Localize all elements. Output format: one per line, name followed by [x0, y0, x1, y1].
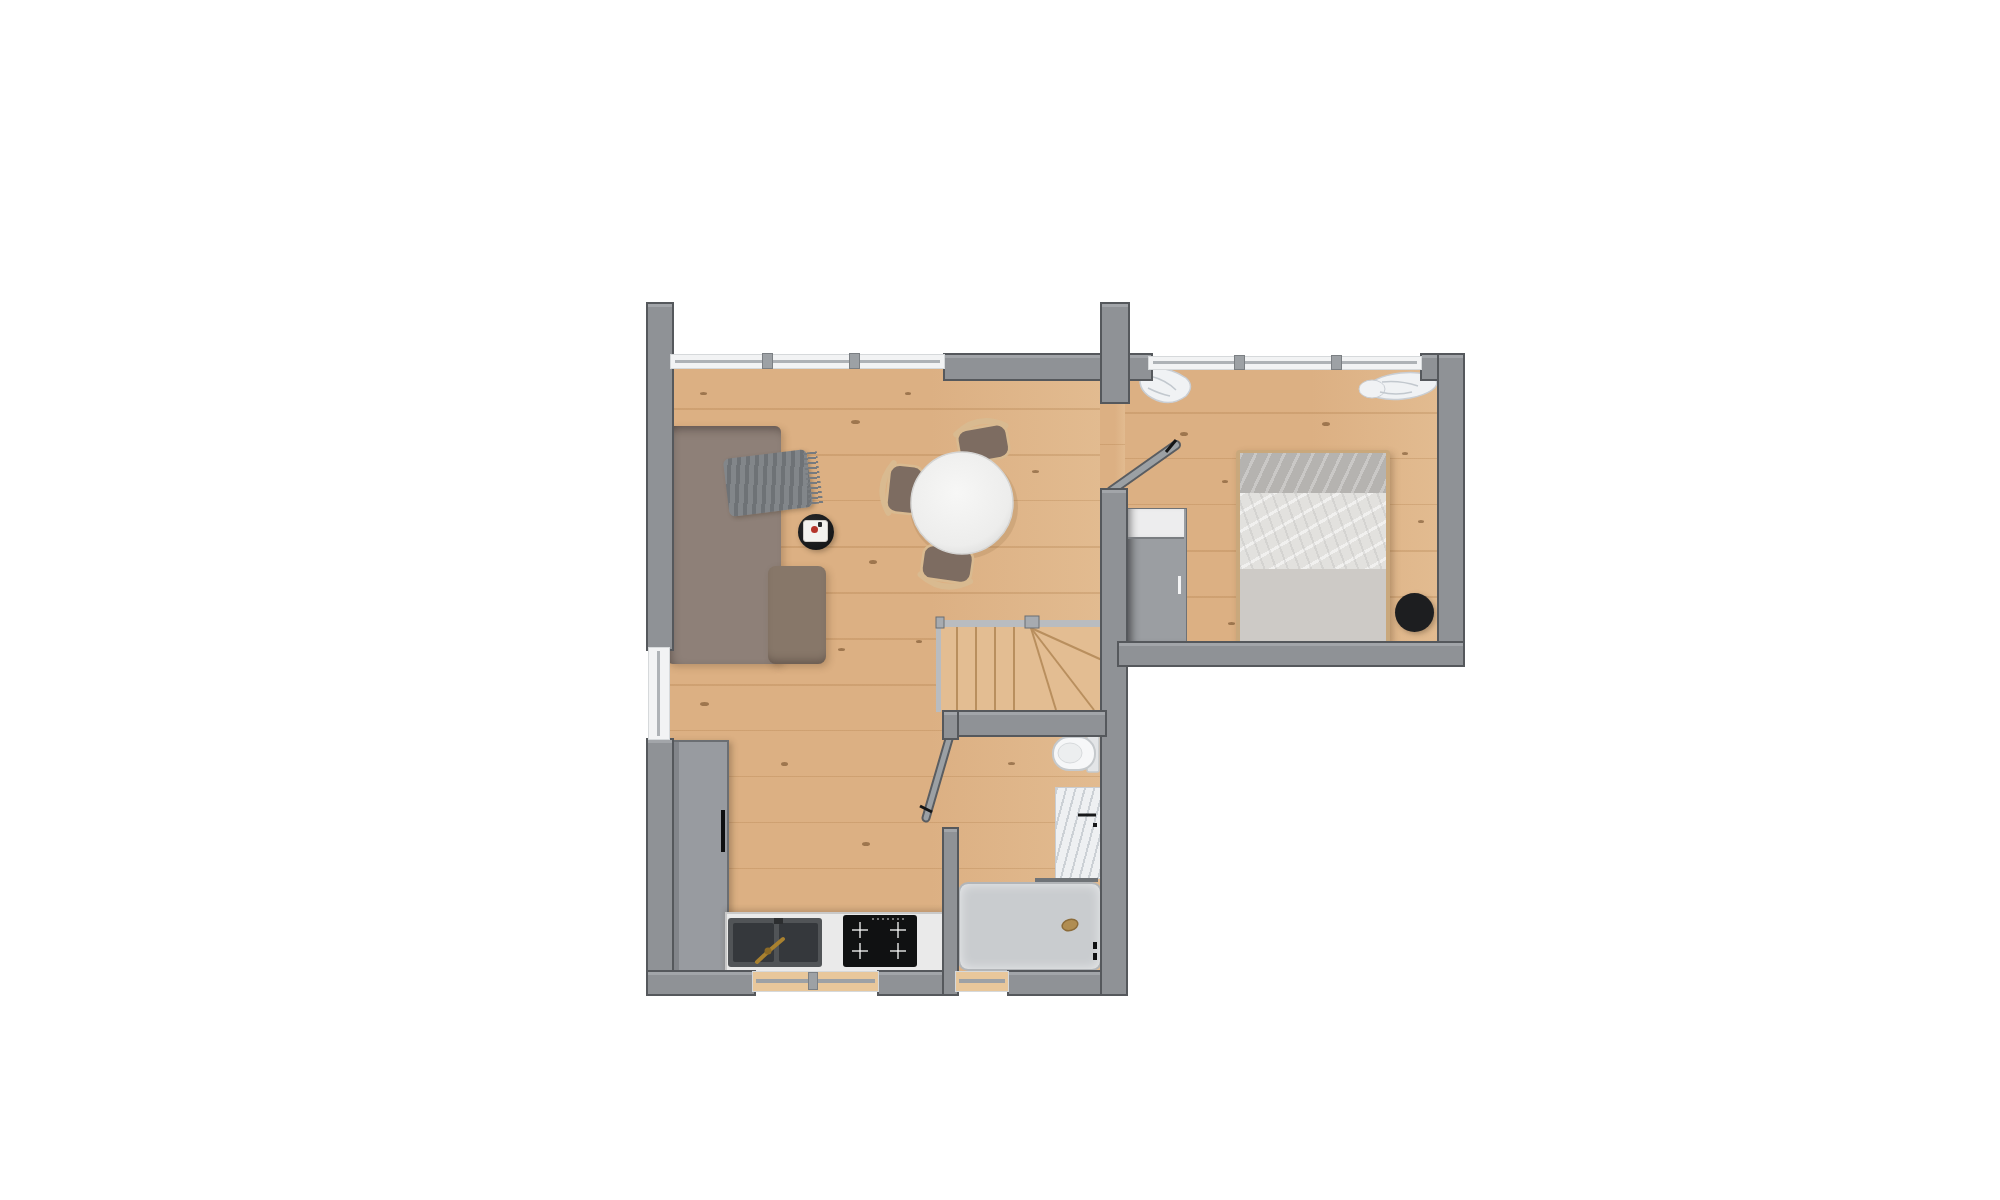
window-mullion	[1234, 355, 1245, 370]
sofa-chaise	[768, 566, 826, 664]
wall-bedroom-bottom	[1117, 641, 1465, 667]
bed-sheet	[1240, 569, 1386, 641]
wood-knot	[700, 392, 707, 395]
wood-knot	[916, 640, 922, 643]
window-mullion	[762, 353, 773, 369]
sink-basin-right	[779, 923, 818, 962]
wall-bath-left-stub	[942, 710, 959, 740]
wood-knot	[1418, 520, 1424, 523]
wall-center-vertical	[1100, 488, 1128, 996]
window-mullion	[849, 353, 860, 369]
kitchen-tall-cabinet	[668, 740, 729, 976]
cabinet-handle	[721, 810, 725, 852]
wood-knot	[781, 762, 788, 766]
candle-red	[811, 526, 818, 533]
living-top-window-band	[670, 354, 945, 369]
window-glass	[675, 360, 940, 363]
wall-under-stairs	[942, 710, 1107, 737]
wood-knot	[1008, 762, 1015, 765]
wood-knot	[1322, 422, 1330, 426]
window-glass	[1153, 361, 1417, 364]
wood-knot	[1180, 432, 1188, 436]
black-pouf	[1395, 593, 1434, 632]
cooktop	[843, 915, 917, 967]
wood-knot	[851, 420, 860, 424]
wood-knot	[869, 560, 877, 564]
bathroom-vanity	[1055, 787, 1102, 879]
wood-knot	[1402, 452, 1408, 455]
throw-blanket	[723, 449, 813, 517]
wood-knot	[862, 842, 870, 846]
window-glass	[657, 651, 660, 736]
wood-knot	[905, 392, 911, 395]
window-mullion	[1331, 355, 1342, 370]
bed-foot-band	[1240, 453, 1386, 493]
floor-plan-canvas	[0, 0, 2000, 1200]
shower-bottom-window	[955, 971, 1009, 992]
wall-left-lower	[646, 738, 674, 996]
wood-knot	[1228, 622, 1235, 625]
wardrobe-top-section	[1127, 509, 1184, 539]
wall-bottom-left	[646, 970, 756, 996]
wardrobe-handle	[1178, 576, 1181, 594]
left-wall-window	[648, 647, 670, 740]
tray-item-dark	[818, 522, 822, 527]
window-glass	[959, 979, 1005, 983]
shower-tray	[958, 882, 1102, 971]
wood-knot	[838, 648, 845, 651]
wall-bedroom-right	[1437, 353, 1465, 667]
sink-basin-left	[733, 923, 774, 962]
bed-duvet	[1240, 493, 1386, 569]
wood-knot	[700, 702, 709, 706]
floor-door-threshold	[1100, 398, 1125, 492]
window-mullion	[808, 972, 818, 990]
wood-knot	[1032, 470, 1039, 473]
wall-cross-stub	[1100, 302, 1130, 404]
bedroom-top-window-band	[1148, 356, 1422, 370]
wood-knot	[1222, 480, 1228, 483]
